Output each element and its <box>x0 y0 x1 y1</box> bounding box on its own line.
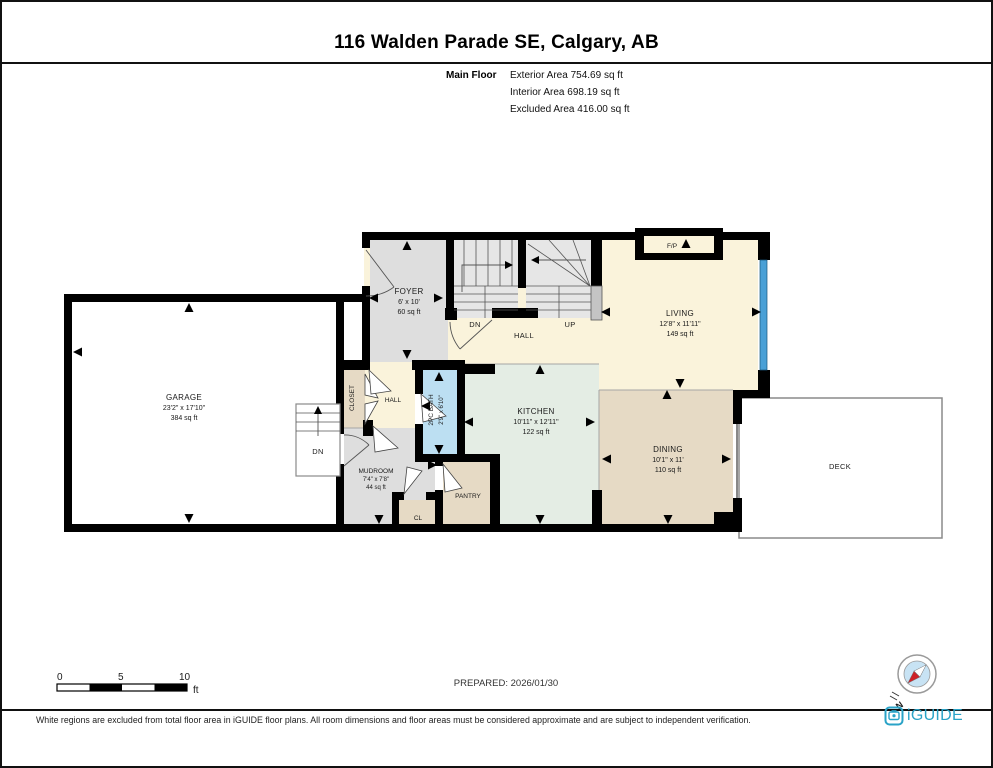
room-area: 122 sq ft <box>523 429 550 436</box>
room-name: GARAGE <box>166 393 202 402</box>
room-name: 2PC BATH <box>428 394 435 426</box>
room-name: KITCHEN <box>517 407 554 416</box>
room-name: FOYER <box>394 287 423 296</box>
room-area: 149 sq ft <box>667 331 694 338</box>
fireplace: F/P <box>635 228 723 260</box>
room-foyer: FOYER 6' x 10' 60 sq ft <box>394 287 423 316</box>
floorplan-drawing: DECK <box>2 2 993 768</box>
room-name: MUDROOM <box>358 468 393 475</box>
compass-icon: N <box>890 655 936 711</box>
room-area: 384 sq ft <box>171 415 198 422</box>
room-dims: 12'8" x 11'11" <box>659 321 701 328</box>
room-dims: 7'4" x 7'8" <box>363 477 389 483</box>
room-label-hall-upper: HALL <box>514 331 534 340</box>
floorplan-page: 116 Walden Parade SE, Calgary, AB Main F… <box>0 0 993 768</box>
disclaimer-text: White regions are excluded from total fl… <box>36 715 751 725</box>
iguide-logo-text: iGUIDE <box>907 707 963 725</box>
arrow-icon <box>185 514 194 523</box>
room-area: 110 sq ft <box>655 467 681 474</box>
prepared-date: PREPARED: 2026/01/30 <box>454 678 558 689</box>
room-dims: 6' x 10' <box>398 299 420 306</box>
stair-railing <box>591 286 602 320</box>
arrow-icon <box>73 348 82 357</box>
fireplace-label: F/P <box>667 243 677 250</box>
room-dims: 23'2" x 17'10" <box>163 405 206 412</box>
deck-area: DECK <box>739 398 942 538</box>
iguide-logo: iGUIDE <box>884 706 963 726</box>
room-dims: 10'1" x 11' <box>652 457 684 464</box>
garage-steps: DN <box>296 404 340 476</box>
footer-divider <box>2 709 991 711</box>
iguide-logo-icon <box>884 706 904 726</box>
room-name: LIVING <box>666 309 694 318</box>
room-area: 44 sq ft <box>366 485 386 491</box>
room-label-cl: CL <box>414 515 423 522</box>
room-dims: 2'9" x 6'10" <box>439 395 445 425</box>
room-area: 60 sq ft <box>398 309 421 316</box>
scale-unit: ft <box>193 685 199 696</box>
scale-tick-10: 10 <box>179 672 191 683</box>
room-dining: DINING 10'1" x 11' 110 sq ft <box>652 445 684 474</box>
stairs-dn-label: DN <box>469 320 480 329</box>
stairs-up-label: UP <box>564 320 575 329</box>
room-label-pantry: PANTRY <box>455 493 481 500</box>
room-name: DINING <box>653 445 683 454</box>
dining-patio-window <box>736 424 738 498</box>
living-window <box>760 260 767 370</box>
room-label-deck: DECK <box>829 462 851 471</box>
room-label-closet: CLOSET <box>349 385 356 411</box>
room-dims: 10'11" x 12'11" <box>513 419 559 426</box>
room-label-hall-lower: HALL <box>385 397 402 404</box>
scale-tick-5: 5 <box>118 672 124 683</box>
scale-tick-0: 0 <box>57 672 63 683</box>
room-garage: GARAGE 23'2" x 17'10" 384 sq ft <box>163 393 206 422</box>
arrow-icon <box>185 303 194 312</box>
garage-stairs-label: DN <box>312 447 323 456</box>
scale-bar: 0 5 10 ft <box>57 672 199 696</box>
